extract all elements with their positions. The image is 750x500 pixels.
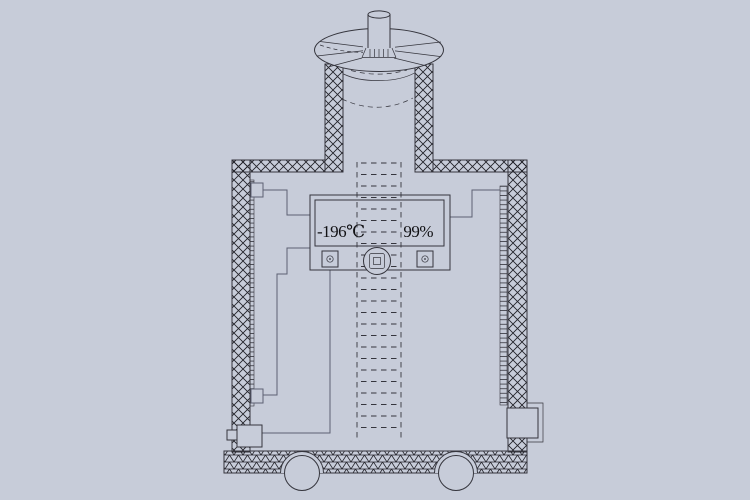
level-reading: 99%	[403, 222, 433, 241]
side-wall-right-lower	[508, 438, 527, 452]
bolt-dot-left	[329, 258, 331, 260]
side-wall-left	[232, 160, 250, 452]
wall-sensor-upper-left	[251, 183, 263, 197]
neck-wall-left	[325, 64, 343, 172]
bolt-dot-right	[424, 258, 426, 260]
valve-body	[237, 425, 262, 447]
pipe-mask	[368, 14, 390, 48]
cad-viewport: -196℃ 99%	[0, 0, 750, 500]
side-port	[507, 403, 543, 442]
bottom-wall	[224, 451, 527, 473]
temperature-reading: -196℃	[317, 222, 365, 241]
liner-strip-left	[250, 180, 254, 406]
liner-strip-right	[500, 186, 507, 405]
side-wall-right-upper	[508, 160, 527, 408]
sensor-square	[370, 254, 385, 269]
wheel-right	[439, 456, 474, 491]
tank-cross-section-drawing: -196℃ 99%	[0, 0, 750, 500]
vent-pipe-rim	[368, 11, 390, 18]
neck-wall-right	[415, 64, 433, 172]
port-box	[507, 408, 538, 438]
valve-tab	[227, 430, 237, 440]
center-sensor	[364, 248, 391, 275]
wheel-left	[285, 456, 320, 491]
wall-sensor-lower-left	[251, 389, 263, 403]
